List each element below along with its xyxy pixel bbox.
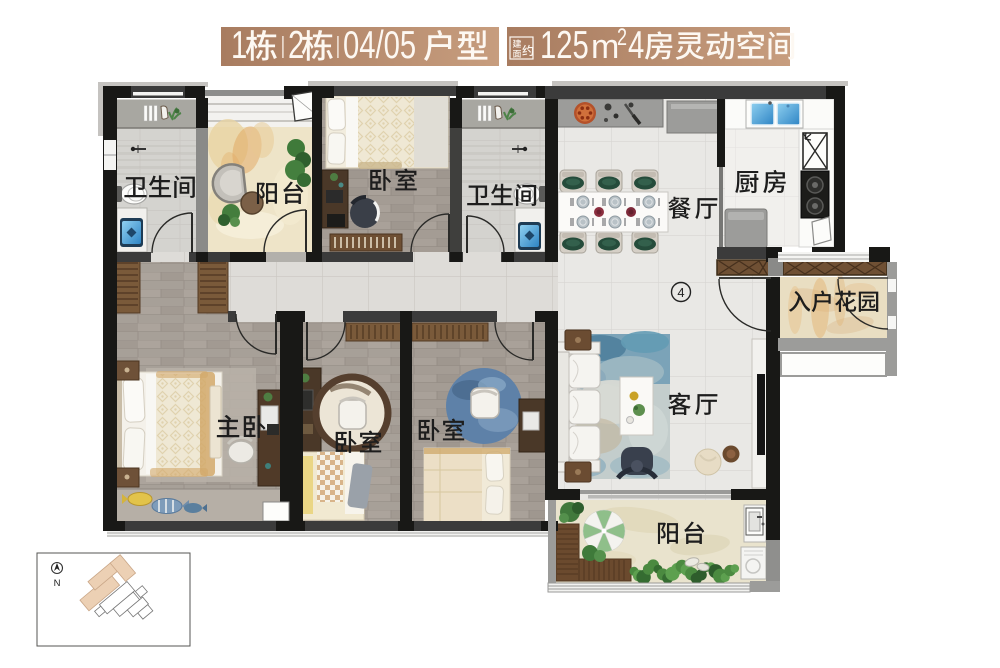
svg-text:1: 1: [231, 24, 247, 67]
svg-text:125: 125: [540, 24, 589, 67]
svg-text:04/05: 04/05: [343, 24, 416, 67]
svg-text:4: 4: [677, 285, 684, 300]
svg-text:4: 4: [628, 24, 644, 67]
svg-text:2: 2: [617, 25, 627, 51]
svg-text:N: N: [54, 578, 61, 589]
svg-text:2: 2: [288, 24, 304, 67]
svg-text:m: m: [591, 28, 619, 66]
